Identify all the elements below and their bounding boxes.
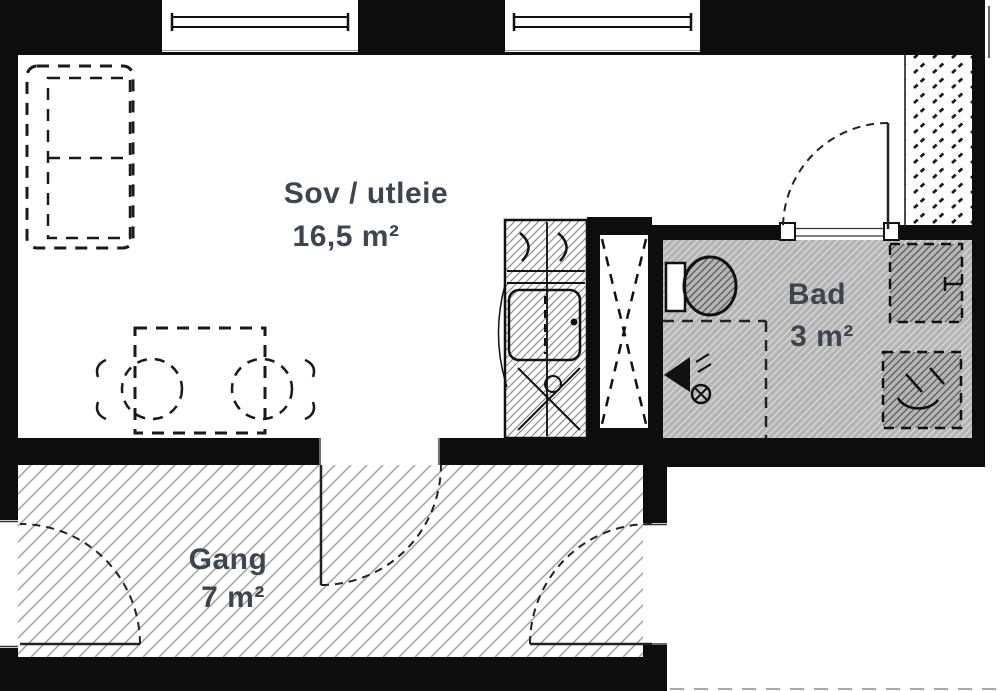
gang-room-floor xyxy=(18,465,643,657)
gang-room-area: 7 m² xyxy=(201,583,265,613)
wardrobe xyxy=(600,235,648,428)
bad-room-label: Bad xyxy=(788,280,846,310)
kitchenette xyxy=(498,220,587,438)
floor-plan: Sov / utleie 16,5 m² Bad 3 m² Gang 7 m² xyxy=(0,0,1005,691)
washbasin xyxy=(890,244,962,322)
floor-plan-drawing xyxy=(0,0,1005,691)
appliance xyxy=(883,352,961,428)
bad-room-area: 3 m² xyxy=(790,322,854,352)
gang-room-label: Gang xyxy=(189,545,268,575)
toilet xyxy=(666,257,736,315)
sov-room-area: 16,5 m² xyxy=(293,222,400,252)
sov-room-label: Sov / utleie xyxy=(284,179,448,209)
